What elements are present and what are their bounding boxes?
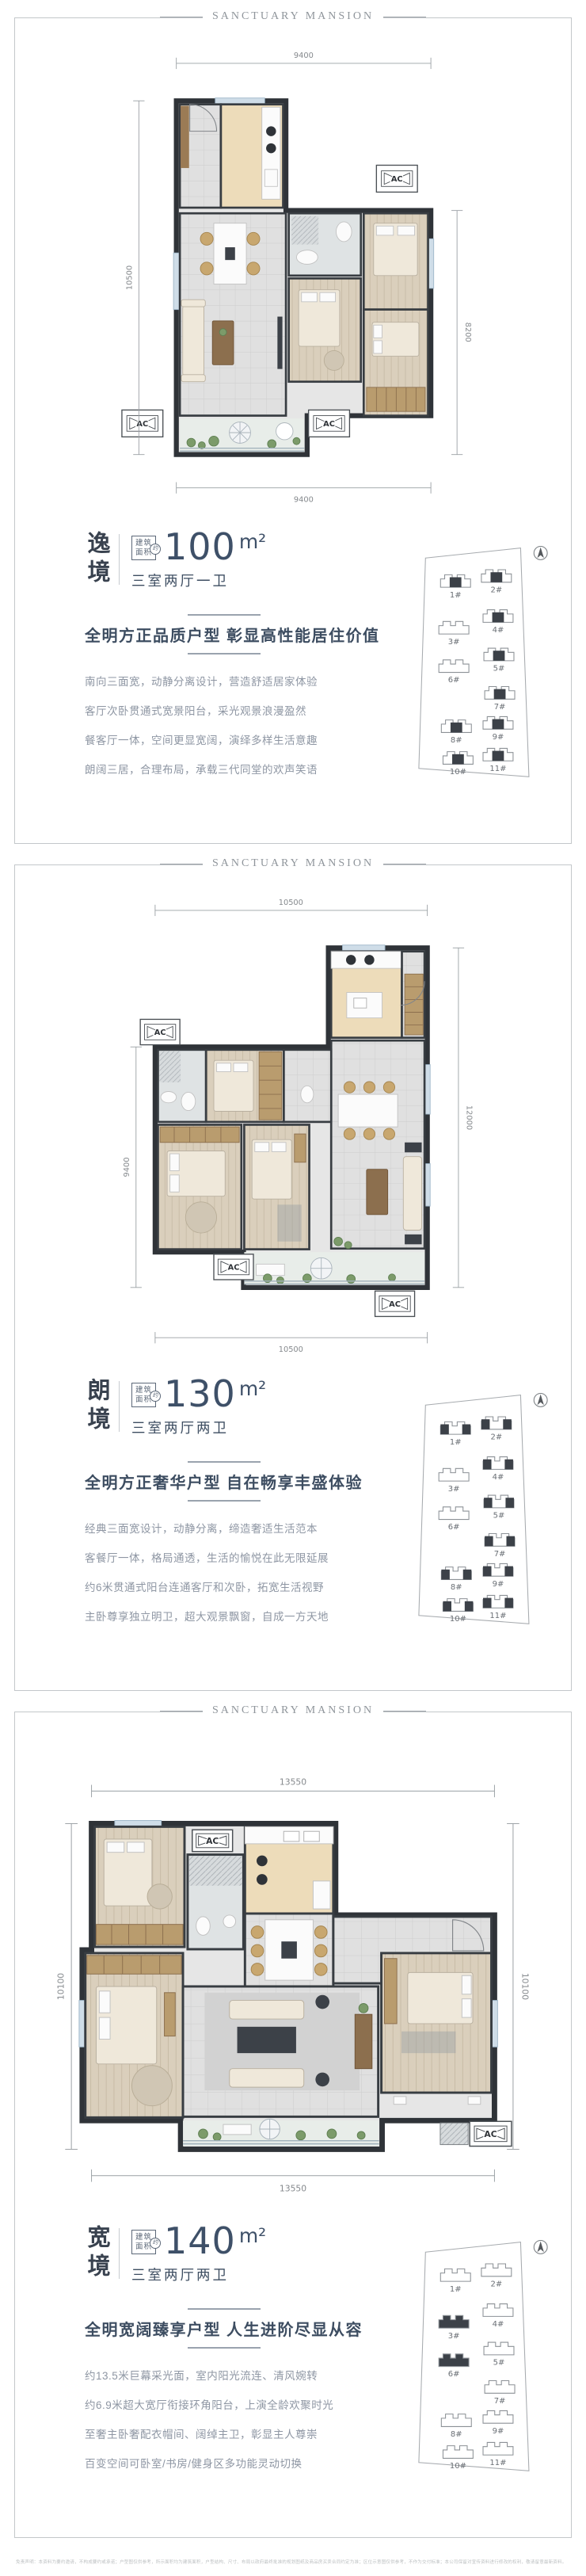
area-value: 140 <box>164 2223 236 2259</box>
floor-plan-area-140: AC AC 13550 13550 10100 <box>15 1712 571 2202</box>
headline-rule-top <box>188 614 261 616</box>
floor-plan-130: AC AC AC 10500 <box>95 887 491 1355</box>
svg-text:AC: AC <box>323 420 335 429</box>
ac-unit: AC <box>214 1254 253 1280</box>
section-unit-130: SANCTUARY MANSION <box>14 864 572 1691</box>
svg-text:10#: 10# <box>450 768 466 777</box>
brand-title: SANCTUARY MANSION <box>203 10 383 23</box>
svg-text:10500: 10500 <box>279 1345 303 1354</box>
area-unit: m² <box>239 1377 266 1400</box>
svg-text:8#: 8# <box>451 1583 462 1592</box>
section-unit-140: SANCTUARY MANSION <box>14 1712 572 2538</box>
master-bedroom <box>158 1124 241 1249</box>
svg-text:10#: 10# <box>450 2462 466 2471</box>
unit-title: 朗境 建筑面积 约 130 m² 三室两厅两卫 <box>85 1376 395 1437</box>
living-room <box>183 1986 379 2116</box>
title-divider <box>119 2228 120 2279</box>
svg-text:13550: 13550 <box>280 2183 306 2193</box>
ac-unit: AC <box>192 1830 233 1851</box>
ac-platform <box>440 2123 468 2144</box>
description-line: 至奢主卧奢配衣帽间、阔绰主卫，彰显主人尊崇 <box>85 2420 395 2449</box>
legal-disclaimer: 免责声明：本资料为要约邀请，不构成要约或承诺；户型图仅供参考，所示面积均为建筑面… <box>14 2559 572 2565</box>
site-plan-map: 1#2#4#3#5#6#7#8#9#10#11# <box>409 538 557 788</box>
svg-text:2#: 2# <box>490 2280 502 2288</box>
svg-text:7#: 7# <box>494 1550 506 1559</box>
header-rule-left <box>160 864 203 864</box>
svg-text:6#: 6# <box>448 676 460 685</box>
brand-title: SANCTUARY MANSION <box>203 857 383 870</box>
description: 南向三面宽，动静分离设计，营造舒适居家体验 客厅次卧贯通式宽景阳台，采光观景浪漫… <box>85 667 395 784</box>
svg-text:5#: 5# <box>493 2358 505 2367</box>
svg-text:10#: 10# <box>450 1615 466 1624</box>
dimension-bottom: 9400 <box>177 483 431 505</box>
area-value: 100 <box>164 529 236 565</box>
room-layout: 三室两厅两卫 <box>131 1418 266 1437</box>
dimension-top: 9400 <box>177 52 431 69</box>
svg-text:1#: 1# <box>450 1438 462 1447</box>
svg-text:AC: AC <box>389 1300 401 1309</box>
description-line: 客厅次卧贯通式宽景阳台，采光观景浪漫盈然 <box>85 696 395 726</box>
approx-mark: 约 <box>150 1391 161 1402</box>
description: 约13.5米巨幕采光面，室内阳光流连、清风婉转 约6.9米超大宽厅衔接环角阳台，… <box>85 2361 395 2479</box>
unit-name: 朗境 <box>85 1378 108 1435</box>
svg-text:8200: 8200 <box>463 322 472 342</box>
hallway-bath <box>283 1050 331 1122</box>
living-dining-room <box>180 213 286 415</box>
svg-text:AC: AC <box>206 1836 219 1846</box>
floor-plan-area-130: AC AC AC 10500 <box>15 865 571 1355</box>
section-headline: 全明宽阔臻享户型 人生进阶尽显从容 <box>85 2317 363 2340</box>
master-bedroom <box>86 1953 183 2117</box>
svg-text:7#: 7# <box>494 2397 506 2406</box>
room-layout: 三室两厅一卫 <box>131 571 266 590</box>
bedroom-3 <box>206 1050 283 1122</box>
svg-text:AC: AC <box>391 175 403 184</box>
floor-plan-area-100: AC AC AC 9400 <box>15 18 571 508</box>
dimension-top: 13550 <box>92 1777 495 1798</box>
svg-text:9400: 9400 <box>294 496 314 505</box>
bathroom <box>188 1855 243 1949</box>
description-line: 朗阔三居，合理布局，承载三代同堂的欢声笑语 <box>85 755 395 784</box>
dimension-left: 9400 <box>123 1047 142 1288</box>
floor-plan-140: AC AC 13550 13550 10100 <box>37 1768 549 2202</box>
header-rule-left <box>160 17 203 17</box>
bedroom-2 <box>94 1826 185 1947</box>
approx-mark: 约 <box>150 544 161 555</box>
dimension-left: 10500 <box>125 101 144 454</box>
svg-text:10500: 10500 <box>279 899 303 907</box>
svg-text:5#: 5# <box>493 1511 505 1520</box>
svg-text:9#: 9# <box>493 2427 504 2436</box>
bathroom <box>289 213 361 276</box>
ac-unit: AC <box>375 1291 415 1316</box>
kitchen <box>180 105 283 208</box>
unit-name: 逸境 <box>85 531 108 588</box>
svg-text:10100: 10100 <box>520 1973 531 2000</box>
kitchen <box>245 1826 333 1914</box>
section-headline: 全明方正奢华户型 自在畅享丰盛体验 <box>85 1470 363 1493</box>
svg-text:11#: 11# <box>489 1612 506 1620</box>
svg-text:10500: 10500 <box>125 265 134 290</box>
approx-mark: 约 <box>150 2238 161 2249</box>
description-line: 百变空间可卧室/书房/健身区多功能灵动切换 <box>85 2449 395 2479</box>
dimension-right: 10100 <box>507 1823 531 2149</box>
ac-unit: AC <box>122 410 163 437</box>
svg-text:12000: 12000 <box>465 1105 474 1130</box>
room-layout: 三室两厅两卫 <box>131 2265 266 2284</box>
svg-text:8#: 8# <box>451 736 462 745</box>
header-rule-right <box>383 1711 426 1712</box>
svg-text:6#: 6# <box>448 1523 460 1532</box>
dining-room <box>245 1914 333 1986</box>
headline-rule-bottom <box>188 2347 261 2349</box>
section-headline: 全明方正品质户型 彰显高性能居住价值 <box>85 623 363 646</box>
svg-text:13550: 13550 <box>280 1777 306 1788</box>
site-plan-map: 1#2#4#3#5#6#7#8#9#10#11# <box>409 2232 557 2483</box>
bedroom-2 <box>289 278 361 381</box>
area-label-box: 建筑面积 约 <box>131 536 156 560</box>
balcony <box>183 2119 379 2146</box>
area-value: 130 <box>164 1376 236 1412</box>
dimension-bottom: 10500 <box>155 1332 428 1354</box>
unit-name: 宽境 <box>85 2225 108 2282</box>
svg-text:AC: AC <box>136 420 148 429</box>
living-dining-room <box>331 1040 424 1249</box>
ac-unit: AC <box>376 166 417 193</box>
svg-text:AC: AC <box>228 1264 240 1273</box>
bathroom <box>158 1050 206 1122</box>
headline-rule-bottom <box>188 1500 261 1502</box>
headline-rule-top <box>188 2308 261 2310</box>
header-rule-right <box>383 17 426 17</box>
ac-unit: AC <box>309 410 350 437</box>
brand-title: SANCTUARY MANSION <box>203 1704 383 1717</box>
svg-text:11#: 11# <box>489 765 506 773</box>
svg-text:1#: 1# <box>450 2285 462 2294</box>
description-line: 约6米贯通式阳台连通客厅和次卧，拓宽生活视野 <box>85 1573 395 1602</box>
svg-text:AC: AC <box>484 2129 497 2139</box>
svg-text:9#: 9# <box>493 1580 504 1589</box>
balcony <box>180 418 304 452</box>
svg-text:2#: 2# <box>490 1433 502 1441</box>
bedroom-3 <box>382 1953 492 2105</box>
svg-text:6#: 6# <box>448 2370 460 2379</box>
dimension-top: 10500 <box>155 899 428 916</box>
brand-header: SANCTUARY MANSION <box>15 857 571 870</box>
area-unit: m² <box>239 2224 266 2247</box>
svg-text:3#: 3# <box>448 638 460 647</box>
svg-text:3#: 3# <box>448 2332 460 2341</box>
site-plan-map: 1#2#4#3#5#6#7#8#9#10#11# <box>409 1385 557 1635</box>
svg-text:3#: 3# <box>448 1485 460 1494</box>
dimension-left: 10100 <box>55 1823 78 2149</box>
svg-text:8#: 8# <box>451 2430 462 2439</box>
area-label-box: 建筑面积 约 <box>131 2230 156 2254</box>
svg-text:4#: 4# <box>493 1473 504 1482</box>
brand-header: SANCTUARY MANSION <box>15 1704 571 1717</box>
svg-text:11#: 11# <box>489 2459 506 2467</box>
dimension-bottom: 13550 <box>92 2170 495 2193</box>
svg-text:9400: 9400 <box>294 52 314 60</box>
title-divider <box>119 1381 120 1432</box>
svg-text:10100: 10100 <box>55 1973 66 2000</box>
ac-unit: AC <box>470 2121 512 2146</box>
description-line: 约13.5米巨幕采光面，室内阳光流连、清风婉转 <box>85 2361 395 2391</box>
svg-text:9#: 9# <box>493 733 504 742</box>
ac-unit: AC <box>140 1019 180 1044</box>
description-line: 主卧尊享独立明卫，超大观景飘窗，自成一方天地 <box>85 1602 395 1631</box>
brand-header: SANCTUARY MANSION <box>15 10 571 23</box>
svg-text:1#: 1# <box>450 591 462 600</box>
header-rule-left <box>160 1711 203 1712</box>
brochure-page: SANCTUARY MANSION <box>0 0 586 2576</box>
svg-text:9400: 9400 <box>123 1158 131 1177</box>
floor-plan-100: AC AC AC 9400 <box>95 40 491 508</box>
svg-text:2#: 2# <box>490 586 502 594</box>
description-line: 南向三面宽，动静分离设计，营造舒适居家体验 <box>85 667 395 696</box>
unit-title: 逸境 建筑面积 约 100 m² 三室两厅一卫 <box>85 529 395 590</box>
description-line: 经典三面宽设计，动静分离，缔造奢适生活范本 <box>85 1514 395 1544</box>
unit-title: 宽境 建筑面积 约 140 m² 三室两厅两卫 <box>85 2223 395 2284</box>
description-line: 约6.9米超大宽厅衔接环角阳台，上演全龄欢聚时光 <box>85 2391 395 2420</box>
svg-text:7#: 7# <box>494 703 506 712</box>
svg-text:4#: 4# <box>493 626 504 635</box>
bedroom-2 <box>244 1124 309 1249</box>
svg-text:5#: 5# <box>493 664 505 673</box>
headline-rule-bottom <box>188 653 261 654</box>
description-line: 餐客厅一体，空间更显宽阔，演绎多样生活意趣 <box>85 726 395 755</box>
master-bedroom <box>363 213 428 309</box>
svg-text:4#: 4# <box>493 2320 504 2329</box>
bedroom-3 <box>363 310 428 416</box>
dimension-right: 8200 <box>451 211 472 455</box>
area-label-box: 建筑面积 约 <box>131 1383 156 1407</box>
area-unit: m² <box>239 530 266 553</box>
title-divider <box>119 534 120 585</box>
header-rule-right <box>383 864 426 864</box>
description-line: 客餐厅一体，格局通透，生活的愉悦在此无限延展 <box>85 1544 395 1573</box>
headline-rule-top <box>188 1461 261 1463</box>
balcony <box>244 1252 424 1284</box>
svg-text:AC: AC <box>154 1028 166 1037</box>
section-unit-100: SANCTUARY MANSION <box>14 17 572 844</box>
dimension-right: 12000 <box>453 948 474 1288</box>
description: 经典三面宽设计，动静分离，缔造奢适生活范本 客餐厅一体，格局通透，生活的愉悦在此… <box>85 1514 395 1631</box>
kitchen <box>331 952 424 1038</box>
